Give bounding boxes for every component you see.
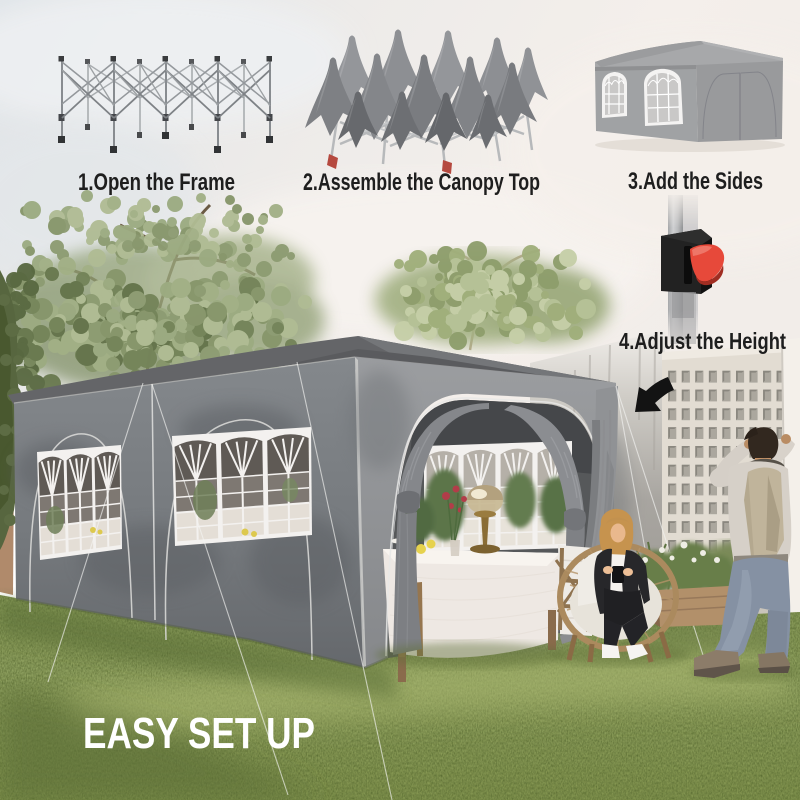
svg-text:2.Assemble the Canopy Top: 2.Assemble the Canopy Top [303, 169, 540, 196]
svg-text:3.Add the Sides: 3.Add the Sides [628, 168, 763, 195]
svg-text:1.Open the Frame: 1.Open the Frame [78, 169, 235, 196]
svg-text:EASY SET UP: EASY SET UP [83, 709, 315, 758]
svg-text:4.Adjust the Height: 4.Adjust the Height [619, 328, 786, 354]
